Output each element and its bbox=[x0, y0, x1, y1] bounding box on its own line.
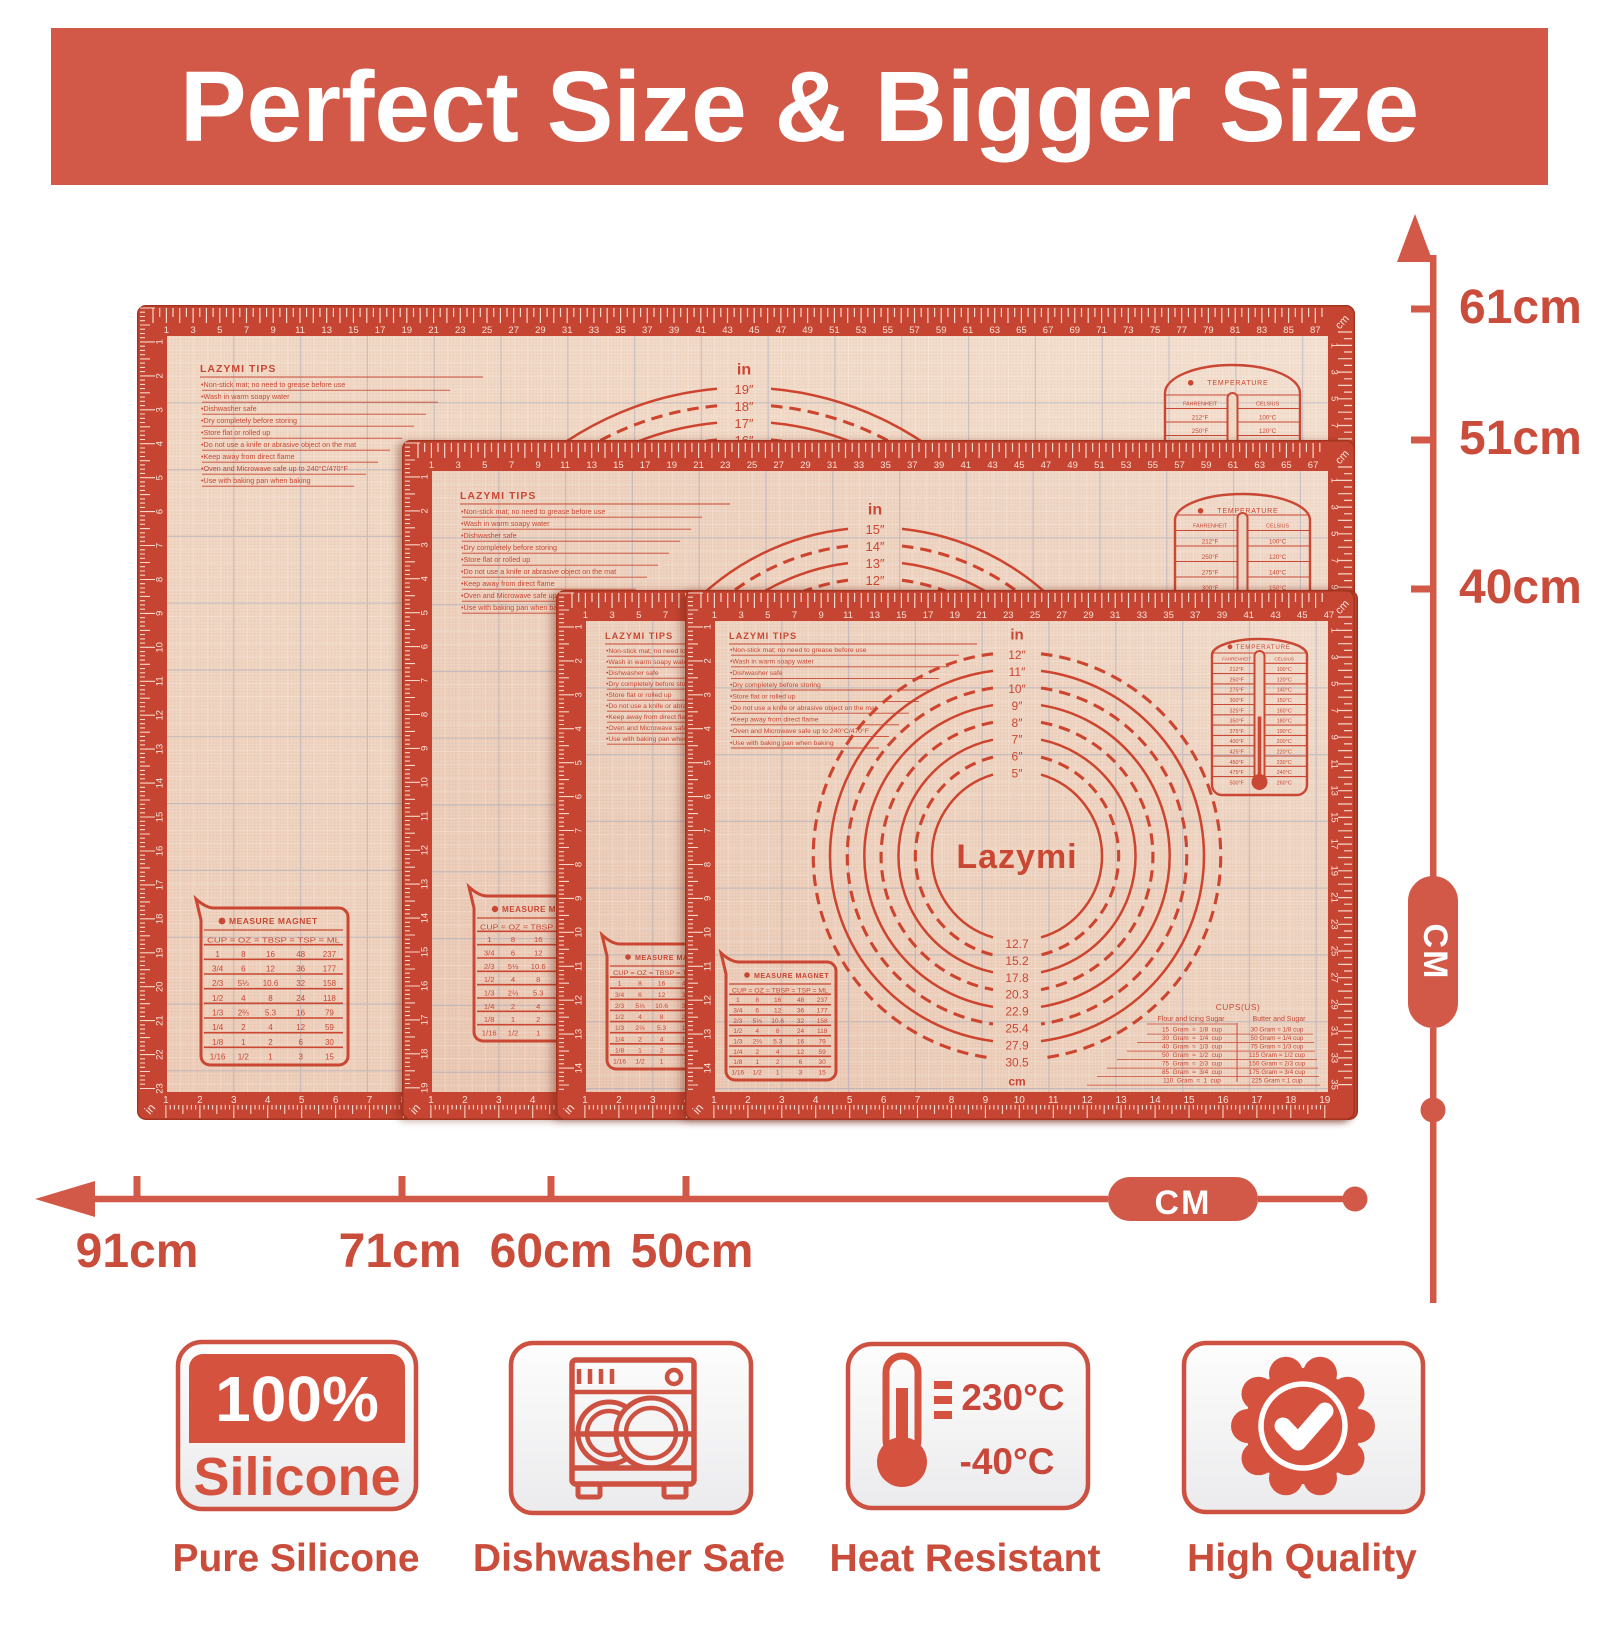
svg-text:11: 11 bbox=[843, 610, 853, 621]
svg-text:•Dishwasher safe: •Dishwasher safe bbox=[730, 670, 783, 677]
svg-text:1/3: 1/3 bbox=[484, 989, 495, 998]
svg-text:177: 177 bbox=[323, 965, 337, 974]
svg-text:212°F: 212°F bbox=[1202, 539, 1219, 546]
svg-text:11: 11 bbox=[703, 961, 714, 971]
svg-text:17: 17 bbox=[420, 1015, 431, 1026]
svg-text:47: 47 bbox=[1324, 610, 1335, 621]
svg-text:87: 87 bbox=[1310, 325, 1321, 336]
svg-text:25: 25 bbox=[1030, 610, 1041, 621]
svg-text:•Keep away from direct flame: •Keep away from direct flame bbox=[201, 452, 295, 461]
svg-text:•Do not use a knife or abrasiv: •Do not use a knife or abrasive object o… bbox=[730, 705, 877, 712]
svg-text:23: 23 bbox=[1328, 919, 1339, 930]
svg-text:5: 5 bbox=[217, 325, 222, 336]
svg-text:65: 65 bbox=[1016, 325, 1027, 336]
svg-text:1/16: 1/16 bbox=[482, 1029, 497, 1038]
svg-text:12: 12 bbox=[534, 949, 542, 958]
svg-text:14: 14 bbox=[420, 913, 431, 924]
svg-text:18: 18 bbox=[155, 914, 166, 925]
svg-text:51: 51 bbox=[1094, 460, 1105, 471]
svg-text:4: 4 bbox=[155, 441, 166, 446]
svg-text:10″: 10″ bbox=[1008, 682, 1026, 696]
svg-text:9: 9 bbox=[1328, 735, 1339, 740]
svg-text:45: 45 bbox=[749, 325, 760, 336]
svg-text:21: 21 bbox=[155, 1015, 166, 1026]
svg-text:17: 17 bbox=[1251, 1095, 1263, 1106]
svg-text:250°F: 250°F bbox=[1202, 554, 1219, 561]
svg-text:61: 61 bbox=[1228, 460, 1239, 471]
svg-text:1: 1 bbox=[163, 1095, 169, 1106]
svg-text:2: 2 bbox=[197, 1095, 203, 1106]
svg-text:7: 7 bbox=[574, 828, 585, 833]
svg-text:190°C: 190°C bbox=[1277, 729, 1292, 735]
svg-text:100°C: 100°C bbox=[1259, 415, 1277, 422]
svg-text:-40°C: -40°C bbox=[960, 1441, 1055, 1482]
svg-text:14: 14 bbox=[703, 1063, 714, 1074]
svg-text:Flour and Icing Sugar: Flour and Icing Sugar bbox=[1158, 1016, 1226, 1023]
svg-text:12: 12 bbox=[420, 845, 431, 856]
svg-text:4: 4 bbox=[511, 975, 515, 984]
svg-text:140°C: 140°C bbox=[1269, 570, 1287, 577]
svg-text:8: 8 bbox=[660, 1014, 664, 1021]
svg-text:37: 37 bbox=[1190, 610, 1201, 621]
svg-text:16: 16 bbox=[420, 981, 431, 992]
svg-text:75 Gram ≈ 1/3 cup: 75 Gram ≈ 1/3 cup bbox=[1251, 1044, 1304, 1051]
svg-text:260°C: 260°C bbox=[1277, 780, 1292, 786]
svg-text:20: 20 bbox=[155, 981, 166, 992]
svg-text:120°C: 120°C bbox=[1259, 428, 1277, 435]
svg-text:85: 85 bbox=[1283, 325, 1294, 336]
svg-text:8: 8 bbox=[511, 935, 515, 944]
svg-text:16: 16 bbox=[534, 935, 542, 944]
svg-text:1/2: 1/2 bbox=[615, 1014, 624, 1021]
svg-text:10.6: 10.6 bbox=[655, 1003, 668, 1010]
svg-text:1/2: 1/2 bbox=[238, 1053, 250, 1062]
svg-text:8: 8 bbox=[420, 712, 431, 717]
svg-text:45: 45 bbox=[1297, 610, 1308, 621]
svg-text:29: 29 bbox=[800, 460, 811, 471]
svg-text:36: 36 bbox=[797, 1008, 805, 1015]
svg-text:51: 51 bbox=[829, 325, 840, 336]
svg-text:6: 6 bbox=[755, 1008, 759, 1015]
svg-text:MEASURE MAGNET: MEASURE MAGNET bbox=[754, 972, 829, 980]
svg-text:12: 12 bbox=[703, 995, 714, 1006]
svg-text:16: 16 bbox=[774, 997, 782, 1004]
svg-text:400°F: 400°F bbox=[1229, 739, 1244, 745]
svg-text:12.7: 12.7 bbox=[1005, 937, 1029, 951]
svg-text:43: 43 bbox=[987, 460, 998, 471]
svg-text:13: 13 bbox=[869, 610, 880, 621]
svg-text:1: 1 bbox=[703, 624, 714, 629]
svg-text:9: 9 bbox=[420, 746, 431, 751]
svg-text:1: 1 bbox=[660, 1059, 664, 1066]
svg-text:9: 9 bbox=[574, 896, 585, 901]
svg-text:4: 4 bbox=[536, 1002, 540, 1011]
svg-text:85 Gram ≈ 3/4 cup: 85 Gram ≈ 3/4 cup bbox=[1162, 1069, 1222, 1076]
svg-text:35: 35 bbox=[880, 460, 891, 471]
svg-text:16: 16 bbox=[1217, 1095, 1229, 1106]
svg-text:2: 2 bbox=[462, 1095, 468, 1106]
svg-text:1: 1 bbox=[583, 610, 588, 621]
svg-text:•Use with baking pan when baki: •Use with baking pan when baking bbox=[730, 740, 834, 747]
svg-text:13: 13 bbox=[321, 325, 332, 336]
svg-text:8: 8 bbox=[776, 1028, 780, 1035]
svg-text:230°C: 230°C bbox=[1277, 760, 1292, 766]
svg-text:•Do not use a knife or abrasiv: •Do not use a knife or abrasive object o… bbox=[461, 567, 616, 576]
svg-text:23: 23 bbox=[155, 1083, 166, 1094]
svg-text:140°C: 140°C bbox=[1277, 688, 1292, 694]
svg-text:16: 16 bbox=[266, 950, 275, 959]
svg-text:30 Gram ≈ 1/4 cup: 30 Gram ≈ 1/4 cup bbox=[1162, 1035, 1222, 1042]
svg-text:18: 18 bbox=[420, 1049, 431, 1060]
svg-text:8″: 8″ bbox=[1012, 716, 1024, 730]
svg-text:23: 23 bbox=[720, 460, 731, 471]
svg-text:5: 5 bbox=[1328, 681, 1339, 686]
svg-text:CUP = OZ = TBSP = TSP = ML: CUP = OZ = TBSP = TSP = ML bbox=[732, 988, 829, 994]
svg-text:31: 31 bbox=[827, 460, 838, 471]
svg-text:6: 6 bbox=[574, 794, 585, 799]
svg-text:1/2: 1/2 bbox=[753, 1070, 762, 1077]
svg-text:1/8: 1/8 bbox=[615, 1047, 624, 1054]
svg-text:12″: 12″ bbox=[1008, 648, 1026, 662]
svg-text:6: 6 bbox=[703, 794, 714, 799]
svg-text:15 Gram ≈ 1/8 cup: 15 Gram ≈ 1/8 cup bbox=[1162, 1027, 1222, 1034]
svg-text:37: 37 bbox=[907, 460, 918, 471]
svg-text:•Non-stick mat; no need to gre: •Non-stick mat; no need to grease before… bbox=[730, 647, 867, 654]
svg-text:100%: 100% bbox=[215, 1363, 379, 1435]
svg-text:CM: CM bbox=[1416, 924, 1454, 981]
svg-text:67: 67 bbox=[1308, 460, 1319, 471]
svg-text:3: 3 bbox=[155, 407, 166, 412]
svg-text:11″: 11″ bbox=[1009, 665, 1026, 679]
svg-text:4: 4 bbox=[574, 726, 585, 731]
svg-text:1: 1 bbox=[1328, 628, 1339, 633]
svg-text:57: 57 bbox=[909, 325, 920, 336]
svg-text:30: 30 bbox=[819, 1059, 827, 1066]
svg-text:425°F: 425°F bbox=[1229, 750, 1244, 756]
svg-text:237: 237 bbox=[817, 997, 828, 1004]
svg-text:11: 11 bbox=[574, 961, 585, 971]
svg-text:12: 12 bbox=[658, 992, 666, 999]
svg-text:53: 53 bbox=[1121, 460, 1132, 471]
svg-text:3: 3 bbox=[190, 325, 195, 336]
svg-text:5⅓: 5⅓ bbox=[753, 1018, 763, 1025]
svg-text:8: 8 bbox=[155, 577, 166, 582]
svg-text:450°F: 450°F bbox=[1229, 760, 1244, 766]
svg-text:CUP = OZ = TBSP = TSP = ML: CUP = OZ = TBSP = TSP = ML bbox=[207, 936, 340, 945]
svg-text:15: 15 bbox=[613, 460, 624, 471]
svg-text:2: 2 bbox=[638, 1036, 642, 1043]
svg-text:81: 81 bbox=[1230, 325, 1241, 336]
svg-text:43: 43 bbox=[722, 325, 733, 336]
svg-text:2: 2 bbox=[776, 1059, 780, 1066]
svg-text:35: 35 bbox=[615, 325, 626, 336]
svg-text:118: 118 bbox=[817, 1028, 828, 1035]
svg-text:7: 7 bbox=[367, 1095, 373, 1106]
svg-text:1/4: 1/4 bbox=[733, 1049, 742, 1056]
svg-text:6: 6 bbox=[799, 1059, 803, 1066]
svg-text:CELSIUS: CELSIUS bbox=[1274, 656, 1294, 661]
svg-text:29: 29 bbox=[1328, 999, 1339, 1010]
svg-text:59: 59 bbox=[819, 1049, 827, 1056]
svg-text:25: 25 bbox=[1328, 946, 1339, 957]
svg-text:CELSIUS: CELSIUS bbox=[1266, 524, 1289, 530]
svg-text:77: 77 bbox=[1176, 325, 1187, 336]
svg-text:3: 3 bbox=[609, 610, 614, 621]
svg-text:1/16: 1/16 bbox=[731, 1070, 744, 1077]
svg-text:475°F: 475°F bbox=[1229, 770, 1244, 776]
svg-text:160°C: 160°C bbox=[1277, 708, 1292, 714]
svg-text:59: 59 bbox=[936, 325, 947, 336]
svg-text:1: 1 bbox=[1328, 478, 1339, 483]
svg-text:8: 8 bbox=[268, 994, 273, 1003]
svg-text:3/4: 3/4 bbox=[733, 1008, 742, 1015]
svg-text:3: 3 bbox=[738, 610, 743, 621]
svg-text:8: 8 bbox=[536, 975, 540, 984]
svg-text:Lazymi: Lazymi bbox=[956, 838, 1077, 876]
svg-text:25.4: 25.4 bbox=[1005, 1022, 1029, 1036]
svg-text:13″: 13″ bbox=[865, 556, 884, 571]
svg-text:•Wash in warm soapy water: •Wash in warm soapy water bbox=[201, 392, 290, 401]
svg-text:3: 3 bbox=[799, 1070, 803, 1077]
svg-text:6: 6 bbox=[298, 1038, 303, 1047]
svg-text:19″: 19″ bbox=[734, 382, 753, 397]
svg-text:7″: 7″ bbox=[1012, 733, 1024, 747]
svg-text:1: 1 bbox=[755, 1059, 759, 1066]
svg-text:15: 15 bbox=[348, 325, 359, 336]
svg-text:3: 3 bbox=[455, 460, 460, 471]
svg-text:200°C: 200°C bbox=[1277, 739, 1292, 745]
svg-text:63: 63 bbox=[1254, 460, 1265, 471]
svg-text:7: 7 bbox=[1328, 708, 1339, 713]
svg-text:16: 16 bbox=[296, 1009, 305, 1018]
svg-text:15″: 15″ bbox=[865, 522, 884, 537]
svg-text:79: 79 bbox=[1203, 325, 1214, 336]
svg-text:11: 11 bbox=[420, 811, 431, 821]
svg-text:29: 29 bbox=[535, 325, 546, 336]
svg-text:13: 13 bbox=[420, 879, 431, 890]
svg-text:5.3: 5.3 bbox=[265, 1009, 277, 1018]
svg-text:2: 2 bbox=[703, 658, 714, 663]
svg-text:15: 15 bbox=[325, 1053, 334, 1062]
svg-text:33: 33 bbox=[1328, 1053, 1339, 1064]
svg-text:24: 24 bbox=[797, 1028, 805, 1035]
svg-text:3: 3 bbox=[1328, 504, 1339, 509]
svg-text:17.8: 17.8 bbox=[1005, 971, 1029, 985]
svg-text:2/3: 2/3 bbox=[212, 979, 224, 988]
svg-text:350°F: 350°F bbox=[1229, 719, 1244, 725]
svg-text:31: 31 bbox=[562, 325, 573, 336]
svg-text:32: 32 bbox=[797, 1018, 805, 1025]
svg-text:Butter and Sugar: Butter and Sugar bbox=[1253, 1016, 1307, 1023]
svg-text:2: 2 bbox=[536, 1015, 540, 1024]
svg-text:29: 29 bbox=[1083, 610, 1094, 621]
svg-text:10.6: 10.6 bbox=[263, 979, 279, 988]
svg-text:5: 5 bbox=[1328, 396, 1339, 401]
svg-text:11: 11 bbox=[1048, 1095, 1059, 1106]
svg-text:3: 3 bbox=[298, 1053, 303, 1062]
svg-text:5: 5 bbox=[636, 610, 641, 621]
svg-text:12: 12 bbox=[155, 710, 166, 721]
svg-text:22.9: 22.9 bbox=[1005, 1005, 1029, 1019]
svg-text:1/3: 1/3 bbox=[615, 1025, 624, 1032]
svg-text:1: 1 bbox=[420, 474, 431, 479]
svg-text:7: 7 bbox=[663, 610, 668, 621]
svg-text:79: 79 bbox=[325, 1009, 334, 1018]
svg-text:1: 1 bbox=[241, 1038, 246, 1047]
svg-text:FAHRENHEIT: FAHRENHEIT bbox=[1222, 656, 1251, 661]
svg-text:250°F: 250°F bbox=[1229, 677, 1244, 683]
svg-text:33: 33 bbox=[589, 325, 600, 336]
svg-text:20.3: 20.3 bbox=[1005, 988, 1029, 1002]
svg-text:3/4: 3/4 bbox=[212, 965, 224, 974]
svg-text:25: 25 bbox=[747, 460, 758, 471]
svg-text:12: 12 bbox=[774, 1008, 782, 1015]
svg-text:47: 47 bbox=[776, 325, 787, 336]
svg-text:4: 4 bbox=[776, 1049, 780, 1056]
svg-text:4: 4 bbox=[241, 994, 246, 1003]
svg-text:•Oven and Microwave safe up to: •Oven and Microwave safe up to 240°C/470… bbox=[201, 464, 349, 473]
svg-text:•Store flat or rolled up: •Store flat or rolled up bbox=[201, 428, 270, 437]
svg-text:212°F: 212°F bbox=[1192, 415, 1209, 422]
svg-text:•Dry completely before storing: •Dry completely before storing bbox=[461, 543, 557, 552]
svg-text:5: 5 bbox=[299, 1095, 305, 1106]
svg-text:11: 11 bbox=[295, 325, 305, 336]
svg-text:19: 19 bbox=[402, 325, 413, 336]
svg-text:1/8: 1/8 bbox=[484, 1015, 495, 1024]
svg-text:275°F: 275°F bbox=[1202, 570, 1219, 577]
svg-text:500°F: 500°F bbox=[1229, 780, 1244, 786]
svg-text:12″: 12″ bbox=[865, 573, 884, 588]
svg-text:•Use with baking pan when baki: •Use with baking pan when baking bbox=[201, 476, 311, 485]
svg-text:2/3: 2/3 bbox=[733, 1018, 742, 1025]
svg-text:19: 19 bbox=[667, 460, 678, 471]
svg-text:5: 5 bbox=[765, 610, 770, 621]
svg-text:7: 7 bbox=[244, 325, 249, 336]
svg-text:15: 15 bbox=[896, 610, 907, 621]
svg-text:4: 4 bbox=[813, 1095, 819, 1106]
svg-text:7: 7 bbox=[792, 610, 797, 621]
svg-text:5″: 5″ bbox=[1012, 767, 1024, 781]
svg-text:1: 1 bbox=[736, 997, 740, 1004]
svg-text:TEMPERATURE: TEMPERATURE bbox=[1207, 380, 1268, 387]
svg-text:45: 45 bbox=[1014, 460, 1025, 471]
svg-text:250°F: 250°F bbox=[1192, 428, 1209, 435]
svg-text:13: 13 bbox=[1328, 785, 1339, 796]
svg-text:67: 67 bbox=[1043, 325, 1054, 336]
svg-text:48: 48 bbox=[296, 950, 305, 959]
svg-text:225 Gram ≈ 1 cup: 225 Gram ≈ 1 cup bbox=[1251, 1078, 1303, 1085]
svg-text:•Keep away from direct flame: •Keep away from direct flame bbox=[730, 717, 819, 724]
svg-text:212°F: 212°F bbox=[1229, 667, 1244, 673]
svg-text:6: 6 bbox=[155, 509, 166, 514]
svg-text:•Non-stick mat; no need to gre: •Non-stick mat; no need to grease before… bbox=[461, 507, 605, 516]
svg-text:71: 71 bbox=[1096, 325, 1107, 336]
svg-text:17: 17 bbox=[640, 460, 651, 471]
svg-text:18: 18 bbox=[1285, 1095, 1297, 1106]
svg-text:•Wash in warm soapy water: •Wash in warm soapy water bbox=[606, 659, 690, 666]
svg-text:37: 37 bbox=[642, 325, 653, 336]
svg-text:33: 33 bbox=[854, 460, 865, 471]
svg-text:5: 5 bbox=[1328, 531, 1339, 536]
svg-text:33: 33 bbox=[1137, 610, 1148, 621]
svg-text:120°C: 120°C bbox=[1277, 677, 1292, 683]
svg-text:9: 9 bbox=[155, 611, 166, 616]
svg-text:158: 158 bbox=[323, 979, 337, 988]
svg-text:7: 7 bbox=[420, 678, 431, 683]
svg-text:CUPS(US): CUPS(US) bbox=[1216, 1002, 1260, 1012]
svg-text:237: 237 bbox=[323, 950, 337, 959]
svg-text:12: 12 bbox=[1082, 1095, 1094, 1106]
svg-text:15: 15 bbox=[420, 947, 431, 958]
svg-text:8: 8 bbox=[638, 981, 642, 988]
svg-text:•Use with baking pan when baki: •Use with baking pan when baking bbox=[461, 603, 571, 612]
svg-text:LAZYMI TIPS: LAZYMI TIPS bbox=[729, 631, 797, 641]
svg-text:27: 27 bbox=[1056, 610, 1067, 621]
svg-text:Silicone: Silicone bbox=[193, 1447, 400, 1507]
svg-text:13: 13 bbox=[574, 1029, 585, 1040]
svg-text:1: 1 bbox=[164, 325, 169, 336]
svg-text:177: 177 bbox=[817, 1008, 828, 1015]
svg-text:27.9: 27.9 bbox=[1005, 1039, 1029, 1053]
svg-text:3/4: 3/4 bbox=[615, 992, 624, 999]
svg-text:50 Gram ≈ 1/2 cup: 50 Gram ≈ 1/2 cup bbox=[1162, 1052, 1222, 1059]
svg-text:1: 1 bbox=[1328, 343, 1339, 348]
svg-text:13: 13 bbox=[155, 744, 166, 755]
svg-text:LAZYMI TIPS: LAZYMI TIPS bbox=[200, 363, 276, 375]
svg-text:5.3: 5.3 bbox=[773, 1039, 782, 1046]
svg-text:7: 7 bbox=[155, 543, 166, 548]
svg-text:•Non-stick mat; no need to gre: •Non-stick mat; no need to grease before… bbox=[201, 380, 345, 389]
svg-text:9: 9 bbox=[271, 325, 276, 336]
svg-text:79: 79 bbox=[819, 1039, 827, 1046]
svg-text:1: 1 bbox=[536, 1029, 540, 1038]
svg-text:21: 21 bbox=[428, 325, 439, 336]
svg-text:5: 5 bbox=[482, 460, 487, 471]
svg-text:3: 3 bbox=[650, 1095, 656, 1106]
svg-text:31: 31 bbox=[1110, 610, 1121, 621]
svg-text:FAHRENHEIT: FAHRENHEIT bbox=[1193, 524, 1228, 530]
svg-text:115 Gram ≈ 1/2 cup: 115 Gram ≈ 1/2 cup bbox=[1249, 1052, 1305, 1059]
svg-text:27: 27 bbox=[773, 460, 784, 471]
svg-text:2: 2 bbox=[268, 1038, 273, 1047]
svg-text:53: 53 bbox=[856, 325, 867, 336]
svg-text:2: 2 bbox=[574, 658, 585, 663]
svg-text:1/2: 1/2 bbox=[484, 975, 495, 984]
svg-text:9: 9 bbox=[703, 896, 714, 901]
svg-text:31: 31 bbox=[1328, 1026, 1339, 1037]
svg-text:10: 10 bbox=[703, 927, 714, 938]
svg-text:15: 15 bbox=[1328, 812, 1339, 823]
svg-text:220°C: 220°C bbox=[1277, 750, 1292, 756]
svg-text:39: 39 bbox=[934, 460, 945, 471]
svg-text:3: 3 bbox=[1328, 369, 1339, 374]
svg-text:4: 4 bbox=[703, 726, 714, 731]
svg-text:7: 7 bbox=[509, 460, 514, 471]
svg-text:in: in bbox=[737, 362, 751, 379]
svg-text:2: 2 bbox=[155, 373, 166, 378]
svg-text:12: 12 bbox=[266, 965, 275, 974]
svg-text:75 Gram ≈ 2/3 cup: 75 Gram ≈ 2/3 cup bbox=[1162, 1061, 1222, 1068]
svg-text:LAZYMI TIPS: LAZYMI TIPS bbox=[460, 490, 536, 502]
svg-text:21: 21 bbox=[693, 460, 704, 471]
svg-text:30: 30 bbox=[325, 1038, 334, 1047]
svg-text:1: 1 bbox=[487, 935, 491, 944]
svg-text:9: 9 bbox=[536, 460, 541, 471]
svg-text:MEASURE MAGNET: MEASURE MAGNET bbox=[229, 916, 318, 926]
svg-text:3: 3 bbox=[703, 692, 714, 697]
svg-text:21: 21 bbox=[1328, 892, 1339, 903]
svg-text:18″: 18″ bbox=[734, 399, 753, 414]
